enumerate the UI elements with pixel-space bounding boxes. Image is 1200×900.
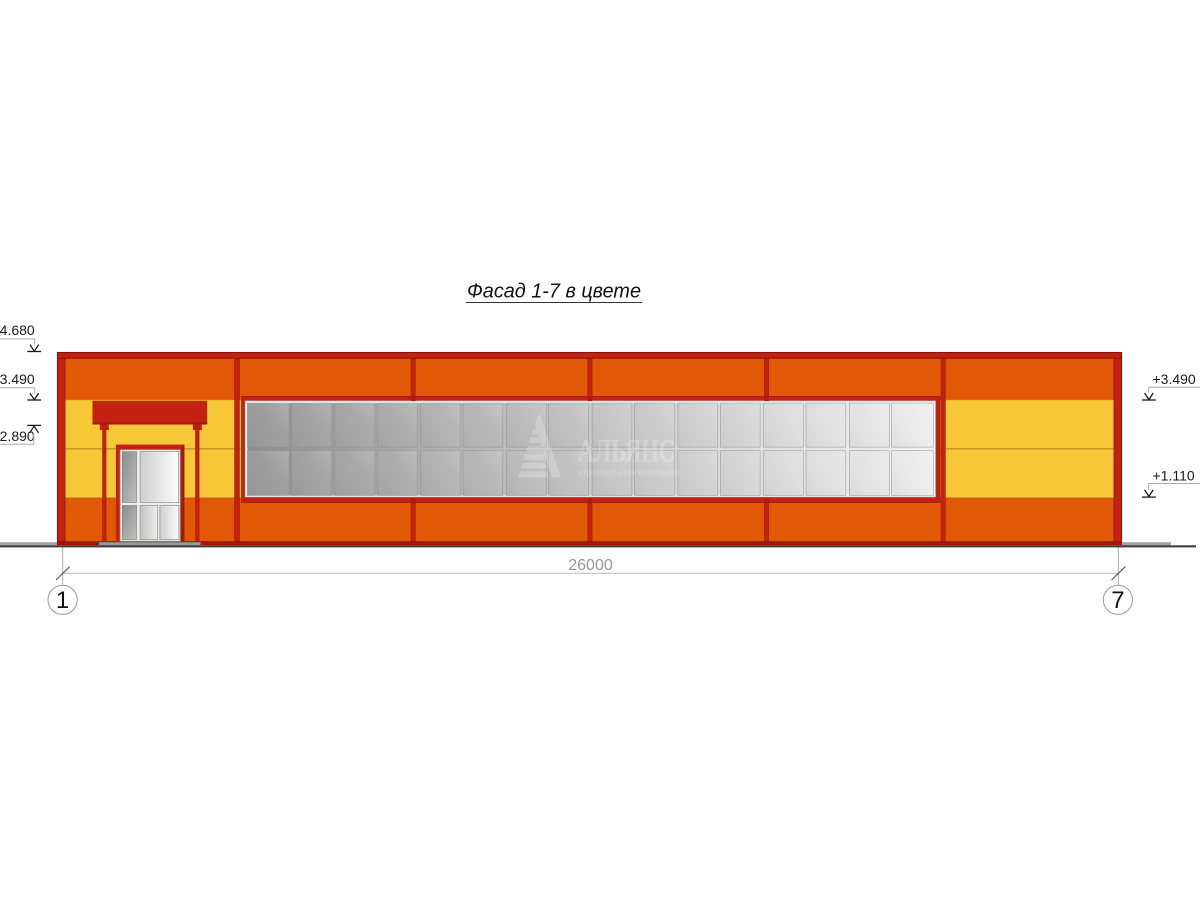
svg-text:Фасад 1-7 в цвете: Фасад 1-7 в цвете <box>467 281 641 303</box>
svg-text:+3.490: +3.490 <box>0 371 35 387</box>
svg-text:+1.110: +1.110 <box>1153 468 1195 484</box>
svg-text:+3.490: +3.490 <box>1153 371 1196 387</box>
svg-text:26000: 26000 <box>568 557 613 574</box>
svg-text:1: 1 <box>56 587 69 614</box>
svg-text:АЛЬЯНС: АЛЬЯНС <box>578 434 675 470</box>
svg-text:+2.890: +2.890 <box>0 428 35 444</box>
svg-text:строительная компания: строительная компания <box>578 467 679 479</box>
svg-text:7: 7 <box>1111 587 1124 614</box>
svg-text:+4.680: +4.680 <box>0 322 35 338</box>
